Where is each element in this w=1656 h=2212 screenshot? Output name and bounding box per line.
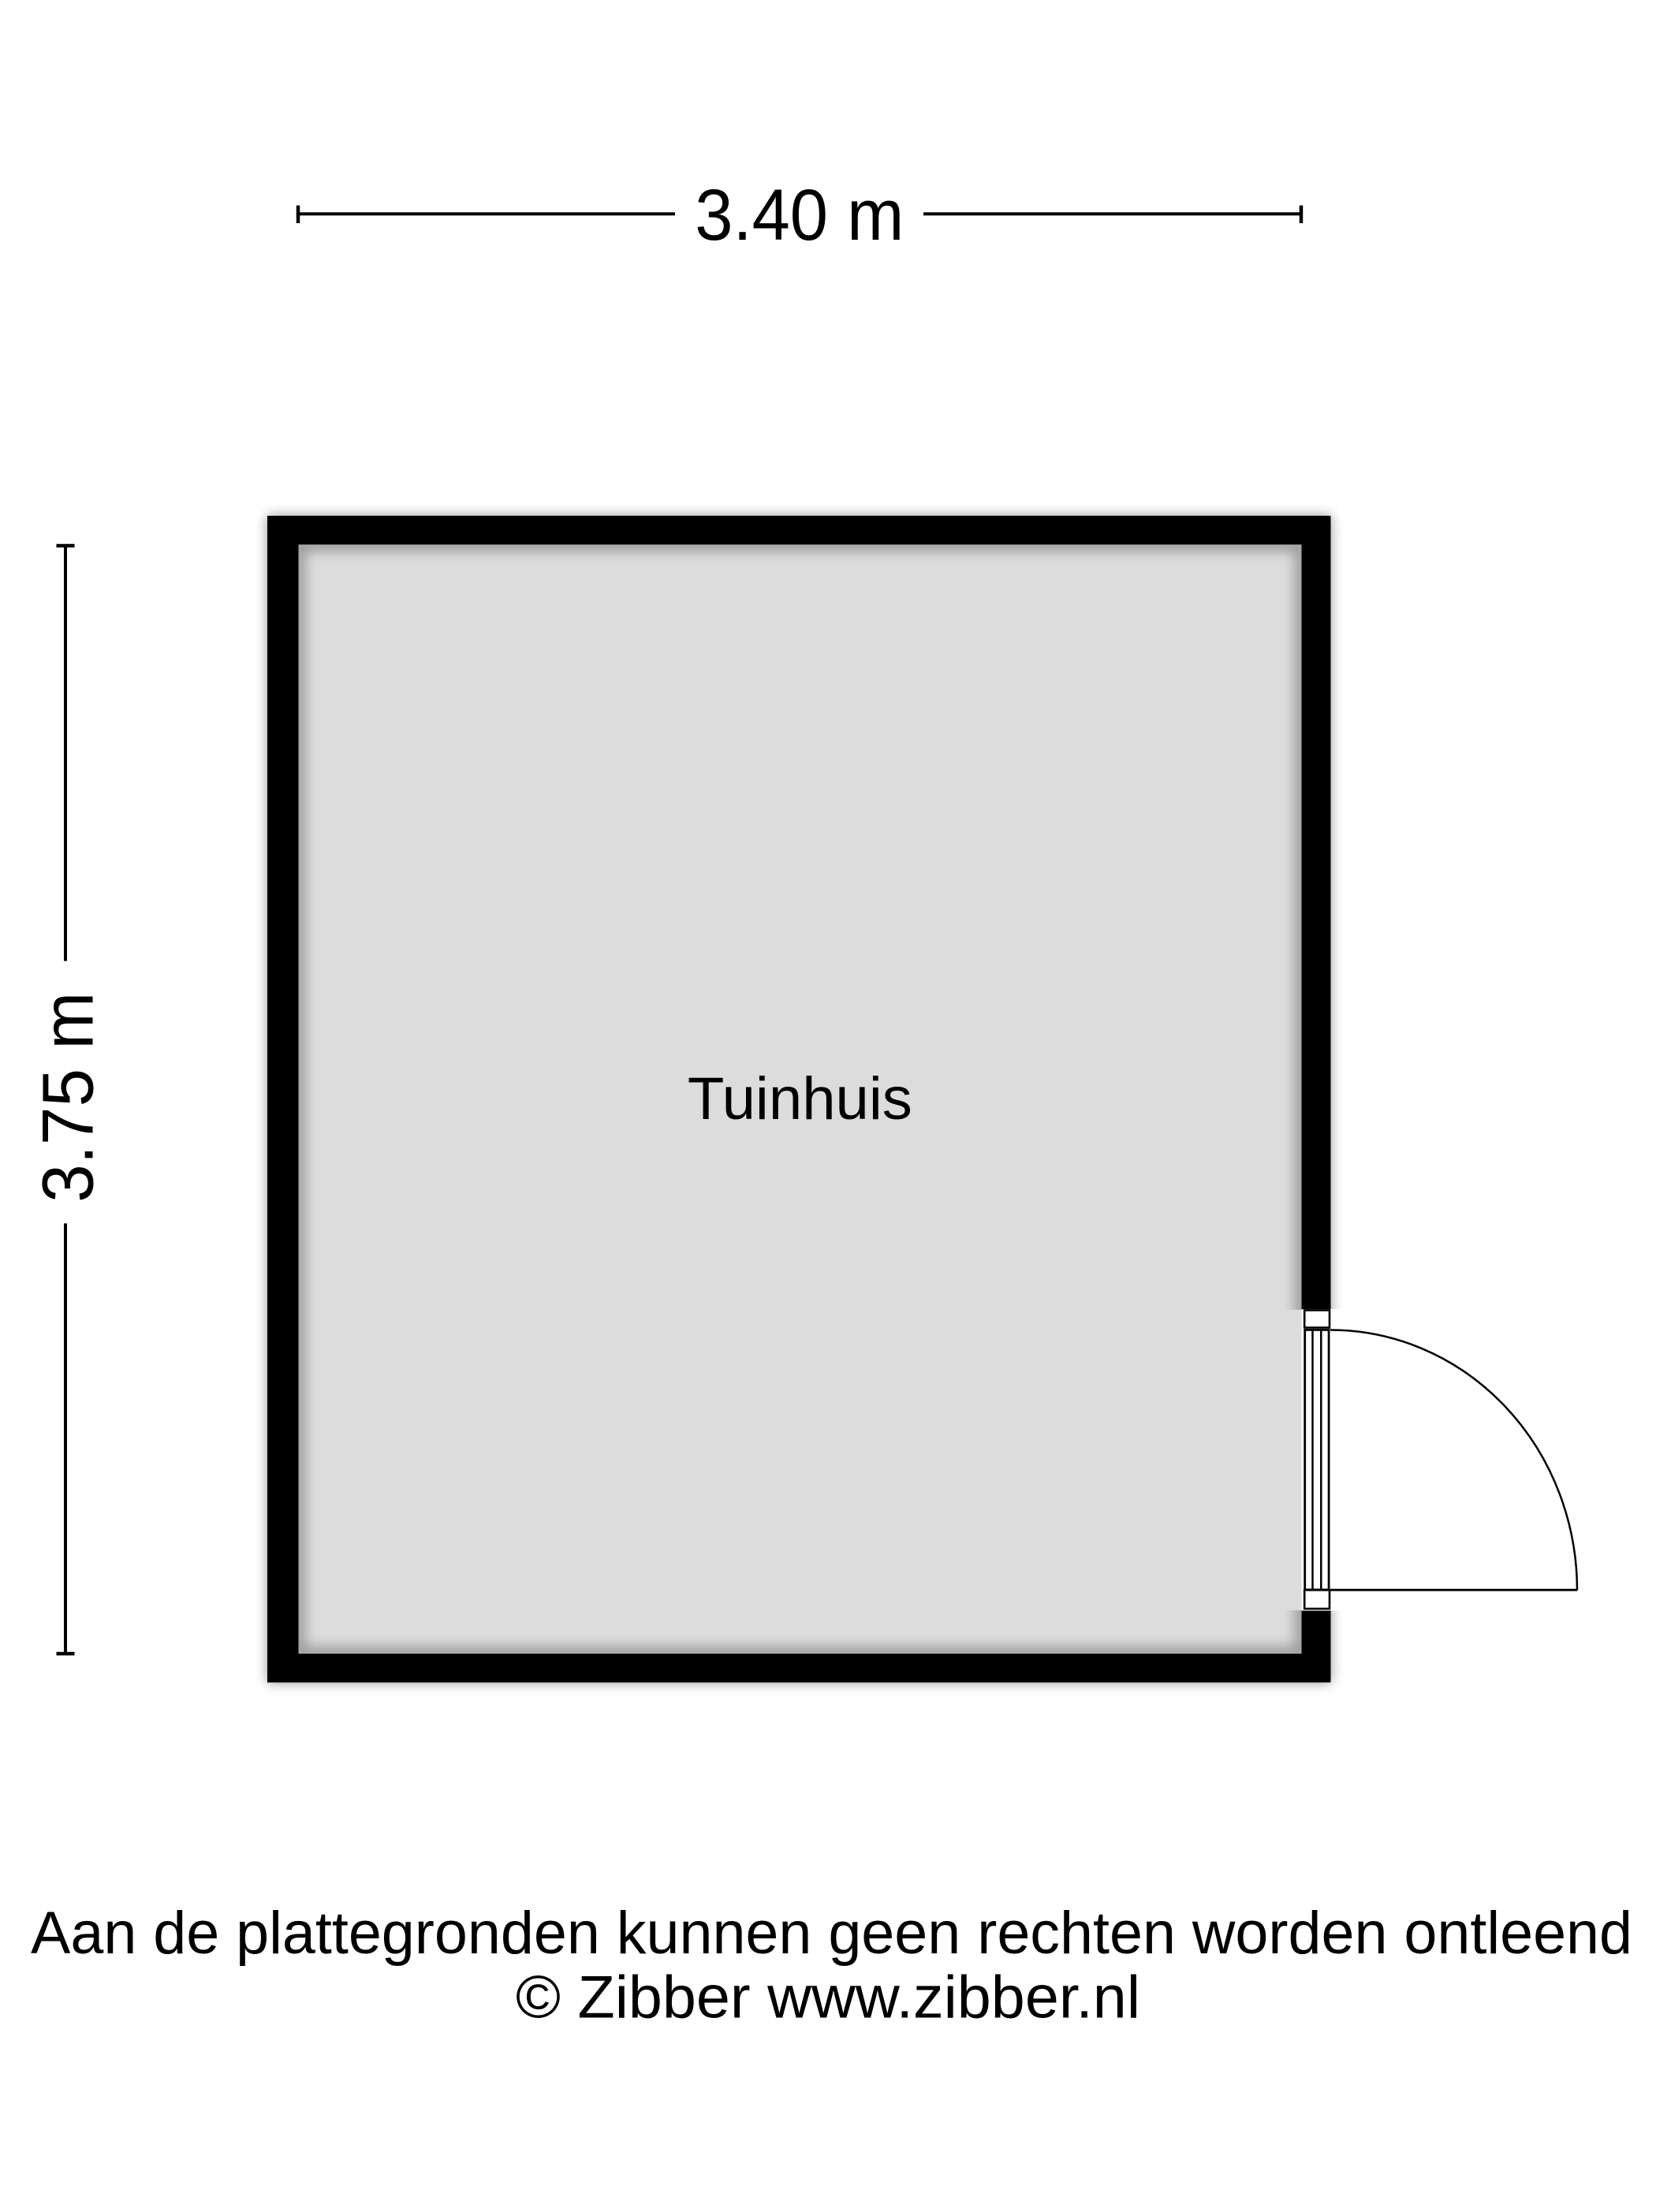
- svg-text:Aan de plattegronden kunnen ge: Aan de plattegronden kunnen geen rechten…: [31, 1900, 1632, 1967]
- svg-text:Tuinhuis: Tuinhuis: [688, 1065, 912, 1132]
- svg-text:© Zibber www.zibber.nl: © Zibber www.zibber.nl: [516, 1964, 1140, 2031]
- svg-text:3.75 m: 3.75 m: [28, 992, 109, 1203]
- svg-text:3.40 m: 3.40 m: [695, 175, 904, 256]
